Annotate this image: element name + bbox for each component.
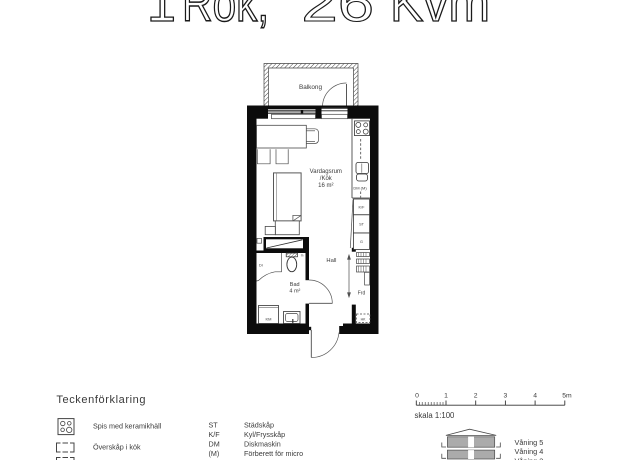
svg-text:ST: ST xyxy=(359,223,365,227)
svg-text:K/F: K/F xyxy=(209,430,221,439)
svg-text:Kvm: Kvm xyxy=(390,0,490,32)
svg-text:HK: HK xyxy=(361,318,367,322)
svg-text:Teckenförklaring: Teckenförklaring xyxy=(56,394,146,406)
svg-text:Spis med keramikhäll: Spis med keramikhäll xyxy=(93,422,162,431)
svg-text:Städskåp: Städskåp xyxy=(244,421,274,430)
svg-text:G: G xyxy=(360,240,363,244)
svg-text:ST: ST xyxy=(209,421,219,430)
svg-text:skala 1:100: skala 1:100 xyxy=(415,411,456,420)
svg-text:3: 3 xyxy=(504,393,508,400)
svg-text:Kyl/Frysskåp: Kyl/Frysskåp xyxy=(244,430,285,439)
svg-text:Hall: Hall xyxy=(326,258,336,264)
svg-text:Bad: Bad xyxy=(290,282,300,288)
svg-text:16 m²: 16 m² xyxy=(318,183,333,189)
svg-text:0: 0 xyxy=(415,393,419,400)
svg-text:2: 2 xyxy=(474,393,478,400)
svg-text:(M): (M) xyxy=(209,449,220,458)
svg-text:5m: 5m xyxy=(562,393,572,400)
svg-text:m: m xyxy=(301,253,304,257)
svg-text:4: 4 xyxy=(533,393,537,400)
svg-text:26: 26 xyxy=(301,0,374,32)
svg-text:Vardagsrum: Vardagsrum xyxy=(310,169,342,175)
svg-text:1: 1 xyxy=(444,393,448,400)
svg-text:Våning 5: Våning 5 xyxy=(515,438,544,447)
svg-text:Frd: Frd xyxy=(358,291,366,297)
svg-text:KM: KM xyxy=(266,317,272,322)
svg-text:K/F: K/F xyxy=(359,206,366,210)
svg-text:/Kök: /Kök xyxy=(320,176,333,182)
svg-text:1: 1 xyxy=(147,0,176,33)
svg-text:Diskmaskin: Diskmaskin xyxy=(244,440,281,449)
svg-text:DM (M): DM (M) xyxy=(353,186,367,191)
svg-text:Överskåp i kök: Överskåp i kök xyxy=(93,443,141,452)
svg-text:Förberett för micro: Förberett för micro xyxy=(244,449,303,458)
svg-text:4 m²: 4 m² xyxy=(289,289,300,295)
svg-text:Balkong: Balkong xyxy=(299,84,323,91)
svg-text:Rok,: Rok, xyxy=(182,0,269,33)
svg-text:Våning 4: Våning 4 xyxy=(515,447,544,456)
svg-text:Våning 3: Våning 3 xyxy=(515,457,544,460)
svg-text:DM: DM xyxy=(209,440,220,449)
